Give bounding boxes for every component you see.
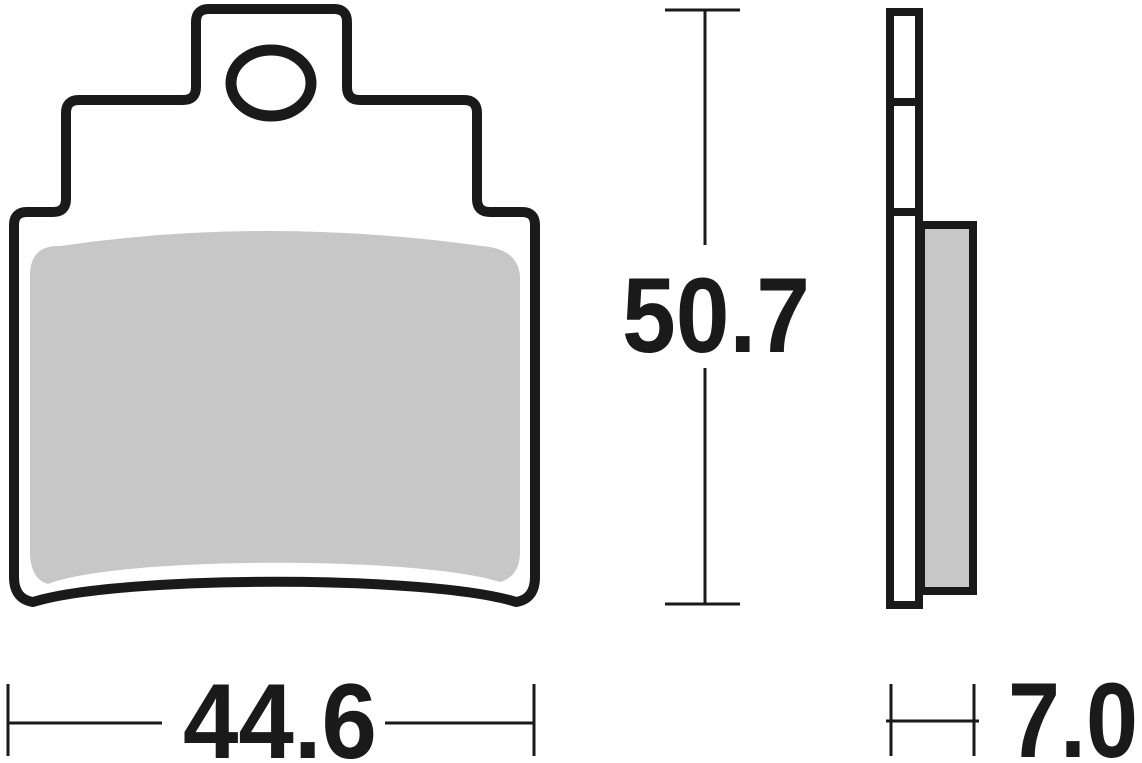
dimension-width: 44.6 — [8, 661, 534, 763]
width-dimension-label: 44.6 — [183, 661, 377, 763]
mounting-hole-icon — [231, 50, 311, 116]
front-view — [14, 9, 535, 602]
brake-pad-drawing: 50.7 44.6 7.0 — [0, 0, 1142, 763]
side-friction-material — [921, 225, 973, 591]
front-friction-material — [30, 231, 520, 584]
dimension-thickness: 7.0 — [886, 660, 1138, 763]
technical-drawing-canvas: 50.7 44.6 7.0 — [0, 0, 1142, 763]
side-view — [887, 12, 973, 605]
thickness-dimension-label: 7.0 — [1008, 660, 1138, 763]
height-dimension-label: 50.7 — [622, 255, 810, 375]
dimension-height: 50.7 — [622, 10, 810, 604]
